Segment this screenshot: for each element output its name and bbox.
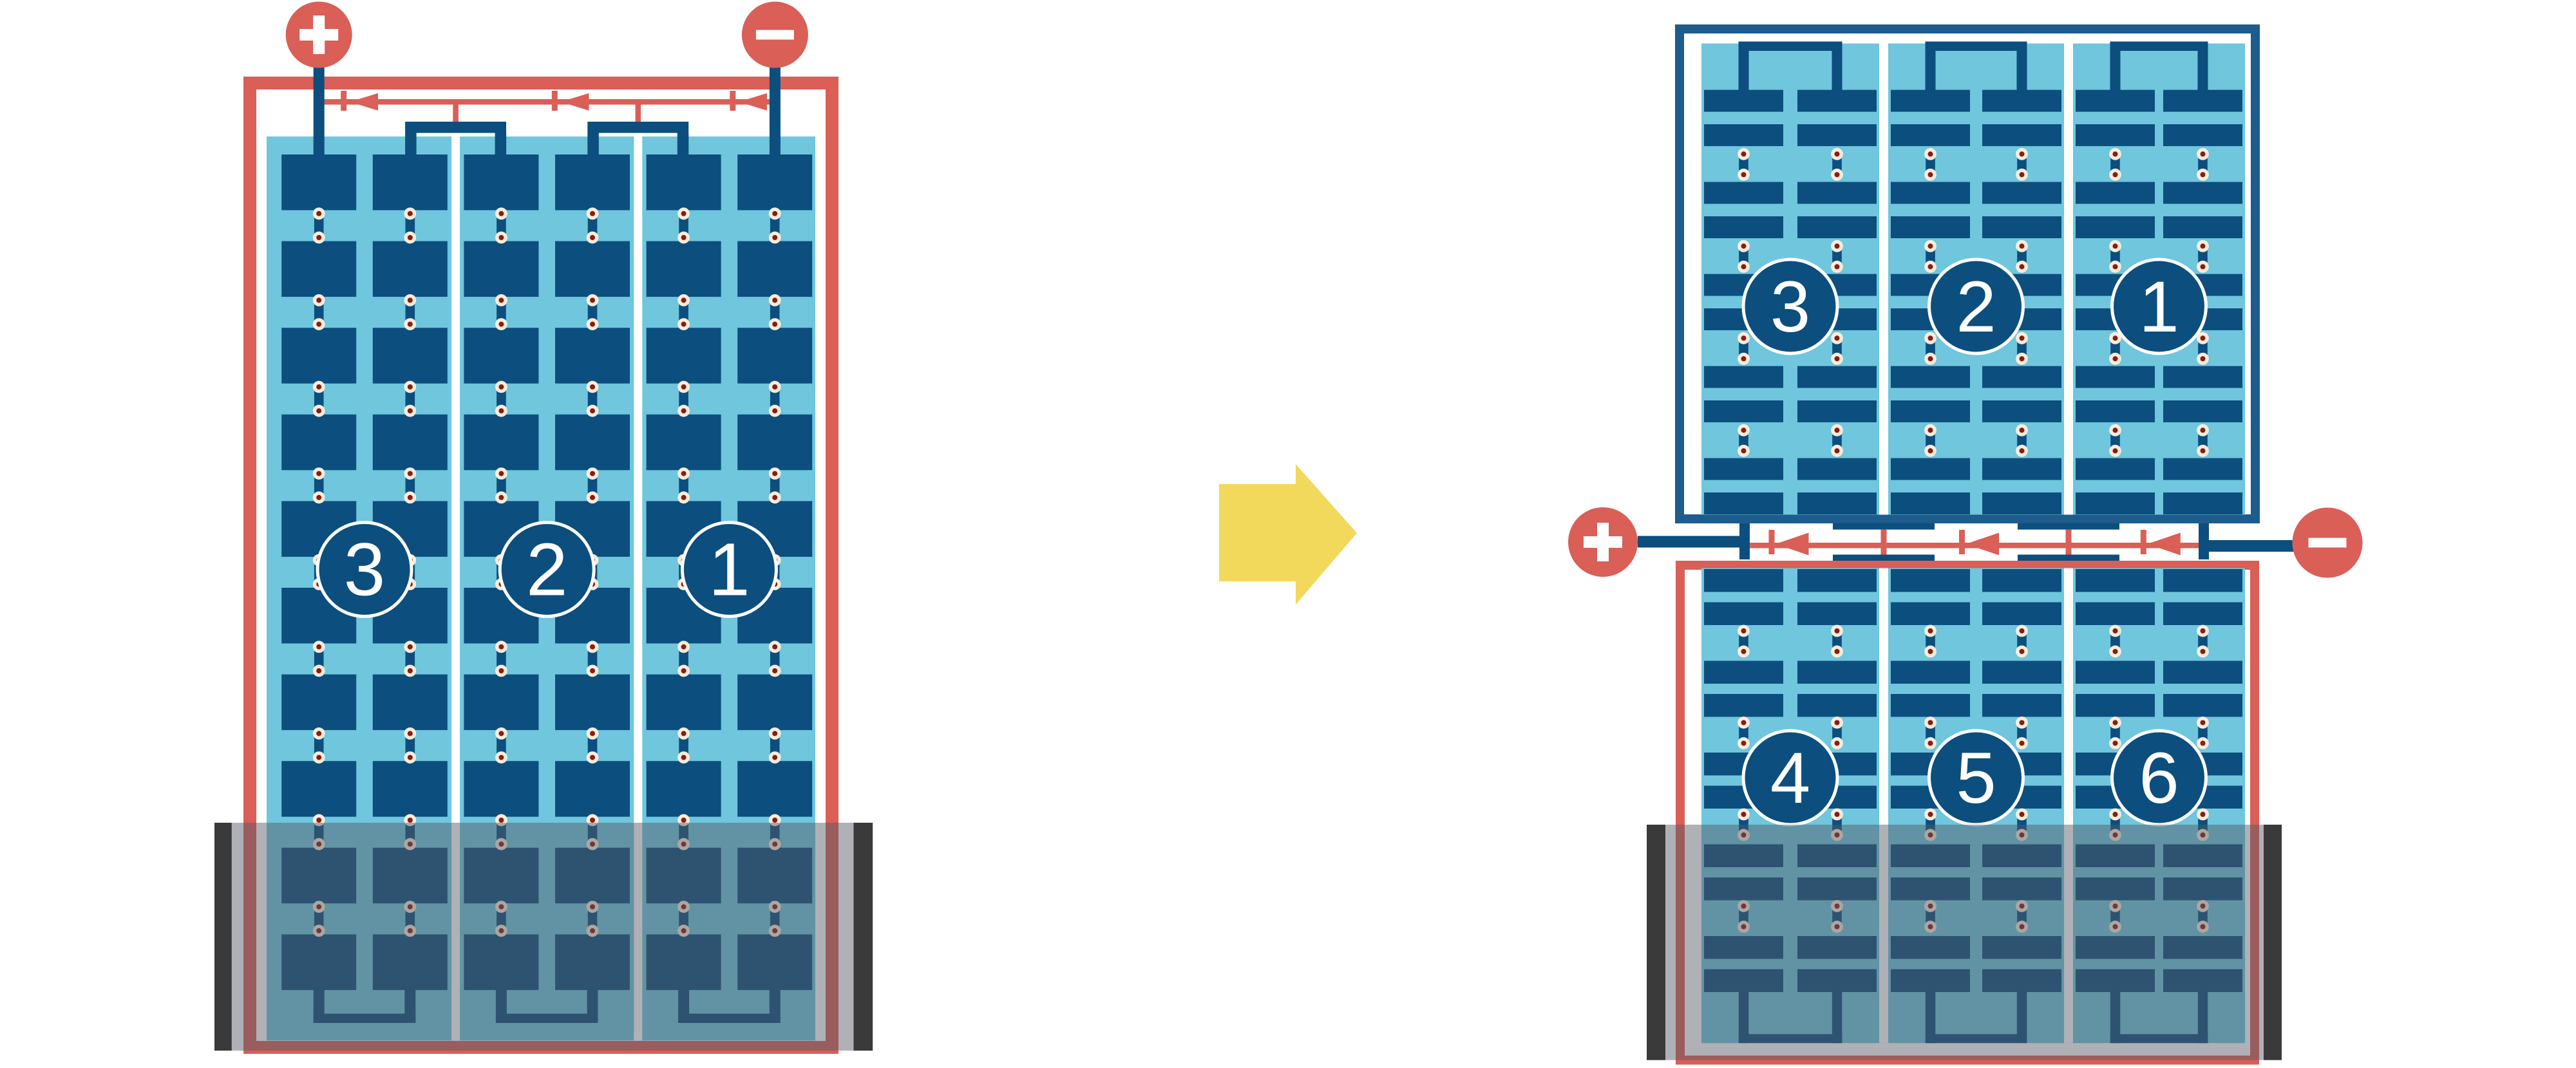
svg-text:4: 4 xyxy=(1770,738,1810,818)
svg-text:6: 6 xyxy=(2139,738,2179,818)
svg-text:2: 2 xyxy=(526,528,568,612)
svg-text:1: 1 xyxy=(708,528,750,612)
svg-text:3: 3 xyxy=(344,528,386,612)
svg-text:1: 1 xyxy=(2139,267,2179,347)
svg-text:5: 5 xyxy=(1956,738,1996,818)
svg-text:2: 2 xyxy=(1956,267,1996,347)
svg-text:3: 3 xyxy=(1770,267,1810,347)
